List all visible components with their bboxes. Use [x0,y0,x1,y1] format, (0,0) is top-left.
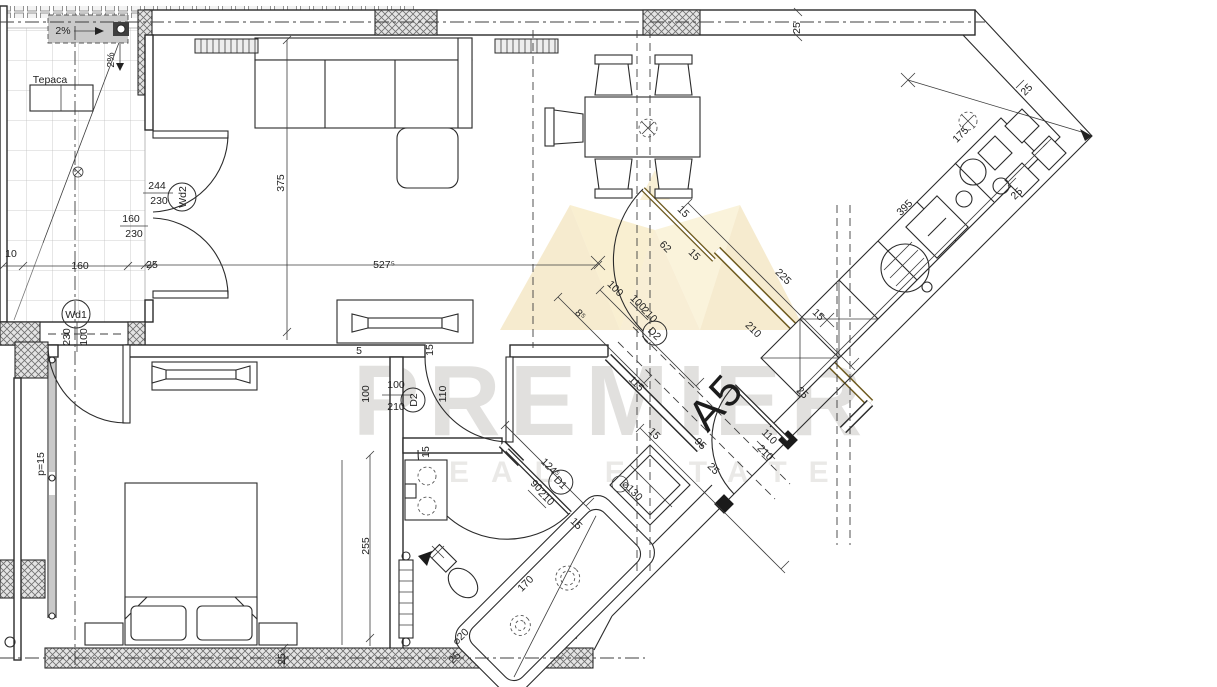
dim-label: Тераса [33,74,68,86]
nightstand [259,623,297,645]
dim-label: 25 [146,259,158,271]
dim-label: 210 [387,401,405,413]
terrace-bench [30,85,93,111]
terrace-floor [3,28,145,322]
bathroom-vanity [405,460,447,520]
radiator [495,39,558,53]
svg-text:100: 100 [78,328,90,346]
north-wall [145,10,975,35]
svg-text:2%: 2% [105,52,117,67]
chair [595,55,632,95]
svg-text:244: 244 [148,180,166,192]
svg-text:230: 230 [61,328,73,346]
svg-text:15: 15 [424,344,436,356]
dim-label: 100 [78,328,90,346]
dim-label: 160 [122,213,140,225]
dim-label: 527⁵ [373,259,395,271]
chair [655,159,692,198]
nightstand [85,623,123,645]
dim-label: 2% [105,52,117,67]
floor-plan-canvas: PREMIER REAL ESTATE [0,0,1217,687]
svg-text:Wd2: Wd2 [177,186,189,208]
chair [595,159,632,198]
svg-text:25: 25 [146,259,158,271]
svg-text:p=15: p=15 [35,452,47,476]
dim-label: 25 [276,653,288,665]
dim-label: 5 [356,345,362,357]
dim-label: 110 [437,385,449,402]
living-south-wall [126,345,425,357]
dim-label: 230 [125,228,143,240]
svg-text:5: 5 [356,345,362,357]
dim-label: 100 [360,385,372,403]
svg-text:527⁵: 527⁵ [373,259,395,271]
svg-text:255: 255 [360,537,372,555]
chair [655,55,692,95]
dim-label: 100 [387,379,405,391]
dim-label: 244 [148,180,166,192]
dim-label: 230 [150,195,168,207]
pillow [197,606,252,640]
dim-label: 15 [420,446,432,458]
svg-text:230: 230 [125,228,143,240]
dim-label: 230 [61,328,73,346]
svg-text:210: 210 [387,401,405,413]
svg-text:2%: 2% [55,25,70,37]
svg-text:160: 160 [71,260,89,272]
svg-text:25: 25 [791,22,803,34]
dim-label: 160 [71,260,89,272]
wall-pillar [643,10,700,35]
floor-plan-page: PREMIER REAL ESTATE [0,0,1217,687]
pillow [131,606,186,640]
bed [125,483,257,645]
svg-text:15: 15 [420,446,432,458]
svg-text:160: 160 [122,213,140,225]
dim-label: 15 [424,344,436,356]
dim-label: 375 [275,174,287,192]
svg-text:100: 100 [360,385,372,403]
dim-label: 255 [360,537,372,555]
svg-text:230: 230 [150,195,168,207]
dim-label: p=15 [35,452,47,476]
svg-text:D2: D2 [408,393,420,407]
svg-text:110: 110 [437,385,449,402]
dim-label: 2% [55,25,70,37]
svg-text:375: 375 [275,174,287,192]
bedroom-dresser [152,362,257,390]
dim-label: 25 [791,22,803,34]
dim-label: 10 [5,248,17,260]
towel-radiator [399,552,413,646]
svg-text:100: 100 [387,379,405,391]
svg-text:Тераса: Тераса [33,74,68,86]
svg-text:Wd1: Wd1 [65,309,87,321]
svg-text:10: 10 [5,248,17,260]
svg-text:25: 25 [276,653,288,665]
radiator [195,39,258,53]
tv-console [337,300,473,343]
wall-pillar [375,10,437,35]
chair [545,108,583,146]
